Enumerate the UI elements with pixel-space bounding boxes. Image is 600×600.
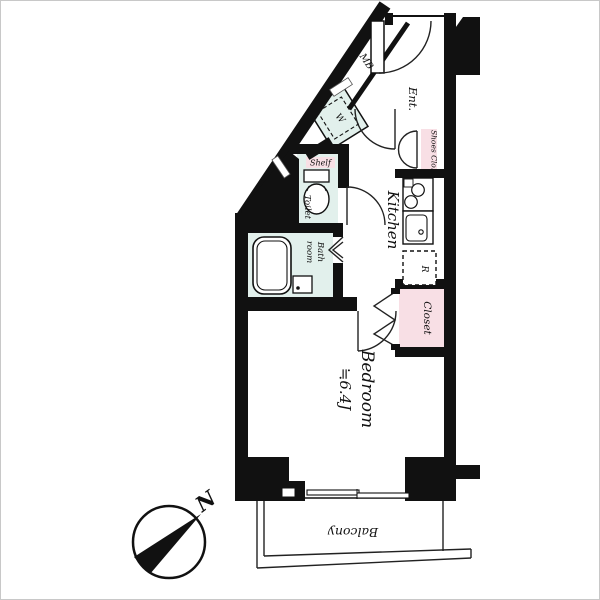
balcony-label: Balcony (327, 525, 379, 540)
bottom-right-pillar (405, 457, 456, 501)
refrigerator-label: R (419, 265, 429, 273)
bathroom-label-line1: Bath (315, 241, 325, 262)
bathroom-label-line2: room (304, 241, 314, 263)
kitchen-sink (403, 211, 433, 244)
bedroom-size-label: ≒6.4J (336, 368, 354, 411)
closet-bottom-wall (395, 347, 446, 357)
shoes-closet-label: Shoes Clo. (430, 130, 439, 170)
shelf-label: Shelf (310, 159, 333, 168)
pillar-notch (282, 488, 295, 497)
bedroom-label: Bedroom ≒6.4J (336, 349, 377, 428)
bedroom-label-line1: Bedroom (357, 349, 377, 428)
toilet-right-wall (338, 144, 349, 188)
wall-stub (456, 465, 480, 479)
bathroom-label: Bath room (304, 241, 325, 263)
wall-filler (241, 151, 299, 229)
entrance-label: Ent. (406, 86, 420, 111)
shoes-closet-doors (399, 131, 418, 168)
shower-box (293, 276, 312, 293)
stove (403, 178, 433, 211)
bathroom-top-wall (247, 223, 343, 233)
bathtub (253, 237, 291, 294)
toilet-door (347, 187, 385, 225)
closet-label: Closet (421, 301, 433, 335)
bathroom-right-wall-lower (333, 263, 343, 297)
kitchen-label: Kitchen (384, 190, 402, 250)
closet-folding-door (374, 288, 400, 350)
floor-plan-canvas: N MB Ent. W Shoes Clo. Kitchen Shelf Toi… (0, 0, 600, 600)
compass: N (133, 485, 221, 578)
bathroom-right-wall-upper (333, 223, 343, 237)
right-wall (444, 13, 456, 457)
toilet-label: Toilet (302, 195, 312, 220)
door-frame-nub (385, 13, 393, 25)
compass-north-label: N (190, 485, 222, 518)
bedroom-top-wall (247, 297, 357, 311)
kitchen-top-wall (395, 169, 444, 178)
floor-plan-svg: N MB Ent. W Shoes Clo. Kitchen Shelf Toi… (1, 1, 599, 599)
